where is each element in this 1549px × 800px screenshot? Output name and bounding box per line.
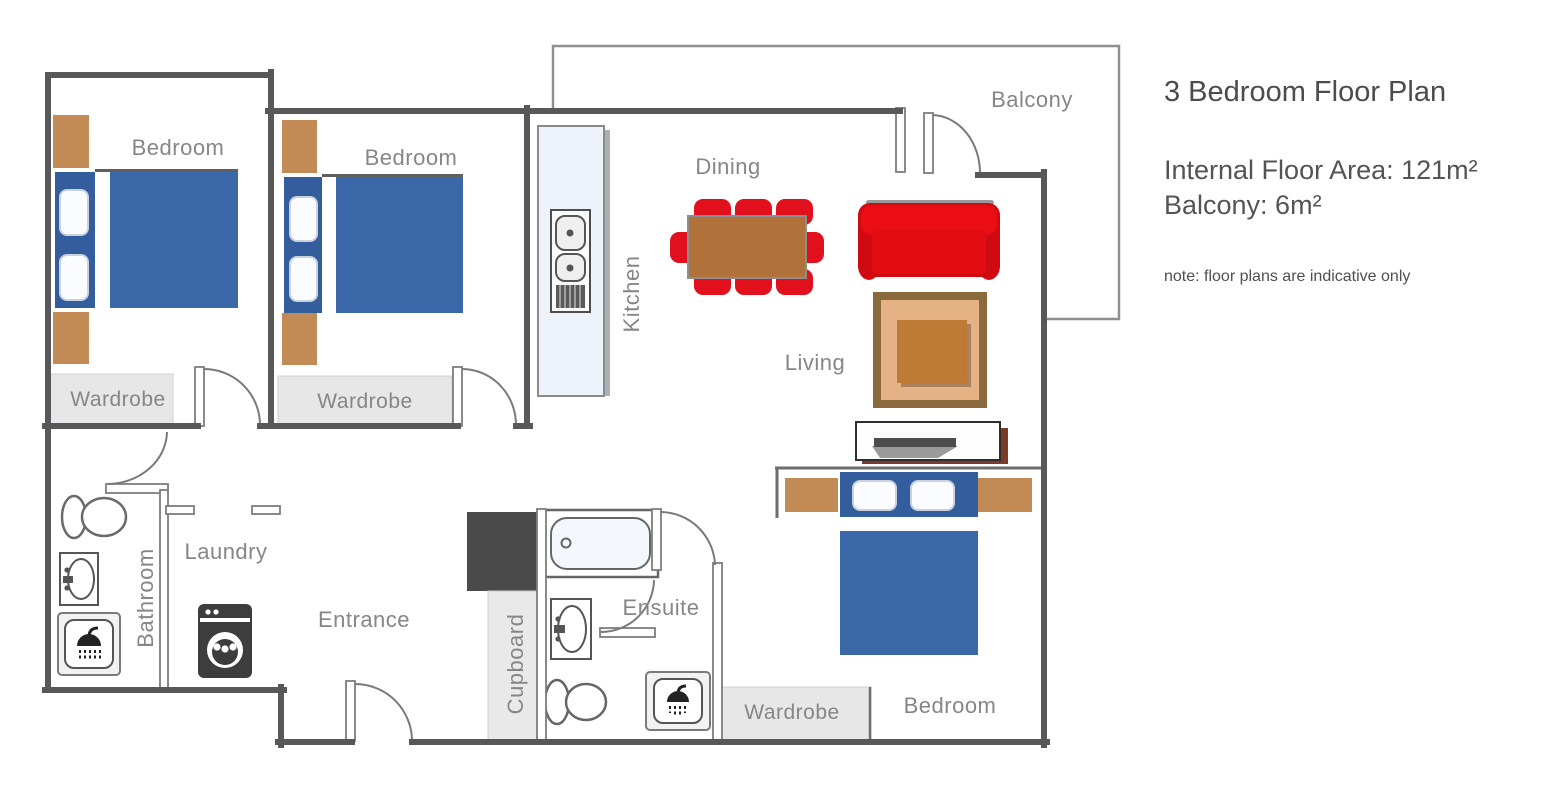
bedroom2-door-leaf xyxy=(453,367,462,426)
living-label: Living xyxy=(785,350,845,376)
laundry-left-wall xyxy=(160,490,168,690)
rug-and-coffee-table xyxy=(873,292,987,408)
entrance-door-leaf xyxy=(346,681,355,741)
laundry-top-wall-right xyxy=(252,506,280,514)
ensuite-door-arc xyxy=(661,512,715,565)
ensuite-door-leaf xyxy=(652,509,661,570)
bedroom1-door-leaf xyxy=(195,367,204,426)
ensuite-toilet-icon xyxy=(545,680,606,724)
kitchen-sink-icon xyxy=(551,210,590,312)
note-text: note: floor plans are indicative only xyxy=(1164,268,1410,286)
balcony-door-arc xyxy=(933,115,980,173)
wardrobe2-label: Wardrobe xyxy=(317,390,412,414)
floor-plan-drawing xyxy=(0,0,1549,800)
entrance-door-arc xyxy=(355,684,412,741)
wardrobe3-label: Wardrobe xyxy=(744,701,839,725)
dining-set xyxy=(670,199,824,295)
balcony-door-jamb xyxy=(896,108,905,172)
bedroom3-label: Bedroom xyxy=(904,693,997,719)
bed-3 xyxy=(785,472,1032,655)
tv-unit xyxy=(856,422,1008,464)
kitchen-label: Kitchen xyxy=(619,256,645,333)
ensuite-shower-icon xyxy=(646,672,710,730)
bathroom-door-leaf xyxy=(106,484,168,493)
balcony-door-leaf xyxy=(924,113,933,173)
cupboard-label: Cupboard xyxy=(503,614,529,715)
ensuite-sink-icon xyxy=(551,599,591,659)
bathroom-door-arc xyxy=(108,432,167,484)
bedroom2-door-arc xyxy=(462,369,516,425)
sofa xyxy=(858,200,1000,280)
entrance-label: Entrance xyxy=(318,607,410,633)
ensuite-right-wall xyxy=(713,563,722,741)
washing-machine-icon xyxy=(198,604,252,678)
bathtub-icon xyxy=(543,510,658,577)
ensuite-left-wall xyxy=(537,509,546,741)
balcony-area-text: Balcony: 6m² xyxy=(1164,190,1322,221)
laundry-top-wall-left xyxy=(166,506,194,514)
balcony-label: Balcony xyxy=(991,87,1073,113)
floor-plan-page: Bedroom Bedroom Dining Balcony Kitchen L… xyxy=(0,0,1549,800)
bedroom1-label: Bedroom xyxy=(132,135,225,161)
ensuite-label: Ensuite xyxy=(623,595,700,621)
page-title: 3 Bedroom Floor Plan xyxy=(1164,76,1446,109)
dining-label: Dining xyxy=(695,154,760,180)
sink-icon xyxy=(60,553,98,605)
laundry-label: Laundry xyxy=(184,539,267,565)
bedroom2-label: Bedroom xyxy=(365,145,458,171)
bathroom-label: Bathroom xyxy=(133,548,159,647)
internal-area-text: Internal Floor Area: 121m² xyxy=(1164,155,1478,186)
shower-icon xyxy=(58,613,120,675)
bedroom1-door-arc xyxy=(204,369,260,425)
toilet-icon xyxy=(62,496,126,538)
wardrobe1-label: Wardrobe xyxy=(70,388,165,412)
